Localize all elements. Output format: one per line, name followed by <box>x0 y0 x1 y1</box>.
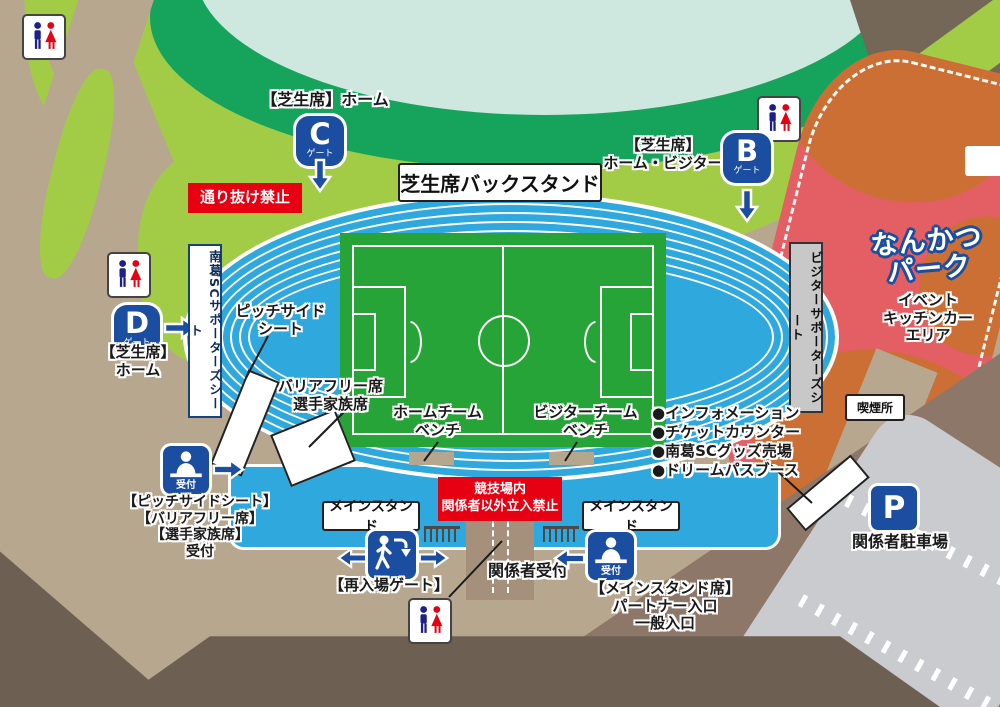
toilet-sign <box>107 252 151 298</box>
arrow-right-icon <box>418 547 450 569</box>
visitor-bench-rect <box>549 452 594 465</box>
reception-desk-icon <box>165 448 207 480</box>
home-bench-label: ホームチーム ベンチ <box>380 404 495 439</box>
main-stand-left-sign: メインスタンド <box>322 501 420 531</box>
toilet-sign <box>22 14 66 60</box>
toilet-icon <box>413 604 447 638</box>
toilet-icon <box>27 20 61 54</box>
reception-badge: 受付 <box>163 446 209 494</box>
park-logo: なんかつ パーク <box>856 222 1000 291</box>
no-entry-sign: 競技場内 関係者以外立入禁止 <box>438 477 562 521</box>
facility-item: ●インフォメーション <box>652 404 857 423</box>
pitch-side-seat-label: ピッチサイド シート <box>218 303 343 338</box>
gate-b-label: 【芝生席】 ホーム・ビジター <box>602 137 724 172</box>
facility-item: ●ドリームパスブース <box>652 461 857 480</box>
mainstand-reception-note: 【メインスタンド席】 パートナー入口 一般入口 <box>565 580 765 633</box>
gate-b-sub: ゲート <box>723 166 771 176</box>
arrow-down-icon <box>735 188 759 224</box>
gate-c-label: 【芝生席】ホーム <box>250 91 400 110</box>
parking-letter: P <box>883 493 906 524</box>
turnstile-left <box>424 526 460 542</box>
gate-b-badge: B ゲート <box>723 133 771 183</box>
facility-item: ●南葛SCグッズ売場 <box>652 442 857 461</box>
facilities-list: ●インフォメーション ●チケットカウンター ●南葛SCグッズ売場 ●ドリームパス… <box>652 404 857 480</box>
building-notch <box>965 146 1000 176</box>
arrow-right-icon <box>212 458 246 481</box>
parking-lines <box>844 494 1000 611</box>
gate-b-letter: B <box>723 136 771 166</box>
road-center-line <box>492 521 494 593</box>
toilet-icon <box>762 102 796 136</box>
pitchside-reception-note: 【ピッチサイドシート】 【バリアフリー席】 【選手家族席】 受付 <box>115 494 285 560</box>
parking-badge: P <box>871 486 917 530</box>
reentry-gate-badge <box>368 531 416 579</box>
toilet-sign <box>408 598 452 644</box>
no-through-sign: 通り抜け禁止 <box>188 183 302 213</box>
goal-area-right <box>630 313 654 371</box>
gate-d-letter: D <box>114 308 160 338</box>
road-center-line <box>507 521 509 593</box>
entrance-road <box>466 516 534 600</box>
gate-d-label: 【芝生席】 ホーム <box>88 344 188 379</box>
reentry-walker-icon <box>368 531 412 575</box>
gate-c-letter: C <box>296 119 344 149</box>
visitor-supporters-seat-sign: ビジターサポーターズシート <box>789 242 823 413</box>
park-area-label: イベント キッチンカー エリア <box>868 292 988 345</box>
facility-item: ●チケットカウンター <box>652 423 857 442</box>
home-bench-rect <box>409 452 454 465</box>
toilet-icon <box>112 258 146 292</box>
goal-area-left <box>352 313 376 371</box>
turnstile-right <box>543 526 579 542</box>
reception-badge-label: 受付 <box>588 566 634 577</box>
parking-label: 関係者駐車場 <box>835 533 965 552</box>
smoking-area-sign: 喫煙所 <box>845 394 905 421</box>
home-supporters-seat-sign: 南葛SCサポーターズシート <box>188 244 222 418</box>
reception-desk-icon <box>590 534 632 566</box>
field-center-circle <box>478 315 530 367</box>
arrow-down-icon <box>308 158 332 194</box>
backstand-sign: 芝生席バックスタンド <box>398 163 602 202</box>
arrow-left-icon <box>552 547 586 570</box>
main-stand-right-sign: メインスタンド <box>582 501 680 531</box>
reception-badge-label: 受付 <box>163 480 209 491</box>
arrow-left-icon <box>336 547 368 569</box>
visitor-bench-label: ビジターチーム ベンチ <box>518 404 653 439</box>
reception-badge: 受付 <box>588 532 634 580</box>
stadium-map: 【芝生席】ホーム C ゲート 【芝生席】 ホーム・ビジター B ゲート D ゲー… <box>0 0 1000 707</box>
reentry-gate-label: 【再入場ゲート】 <box>328 577 450 595</box>
barrier-free-seat-label: バリアフリー席 選手家族席 <box>268 378 393 413</box>
